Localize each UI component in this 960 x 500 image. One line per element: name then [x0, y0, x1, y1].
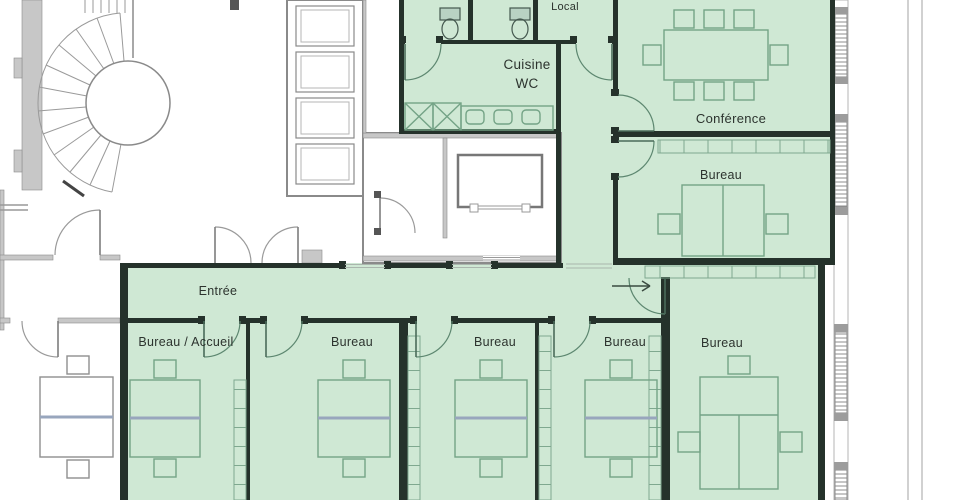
room-label-wc: WC [515, 76, 538, 91]
outside-desk [40, 356, 113, 478]
shaft-column [287, 0, 363, 196]
floor-plan-drawing: Local Cuisine WC Conférence Bureau Entré… [0, 0, 960, 500]
room-label-local: Local [551, 1, 579, 13]
room-label-bureau-3: Bureau [474, 335, 516, 349]
room-label-bureau-mid: Bureau [700, 168, 742, 182]
spiral-staircase [14, 0, 239, 196]
room-label-conference: Conférence [696, 111, 766, 126]
room-label-bureau-right: Bureau [701, 336, 743, 350]
room-label-bureau-2: Bureau [331, 335, 373, 349]
facade-window-wall [834, 0, 922, 500]
room-label-entree: Entrée [199, 284, 238, 298]
room-label-cuisine: Cuisine [503, 57, 550, 72]
floor-plan: Local Cuisine WC Conférence Bureau Entré… [0, 0, 960, 500]
room-label-bureau-4: Bureau [604, 335, 646, 349]
room-label-bureau-accueil: Bureau / Accueil [138, 335, 233, 349]
